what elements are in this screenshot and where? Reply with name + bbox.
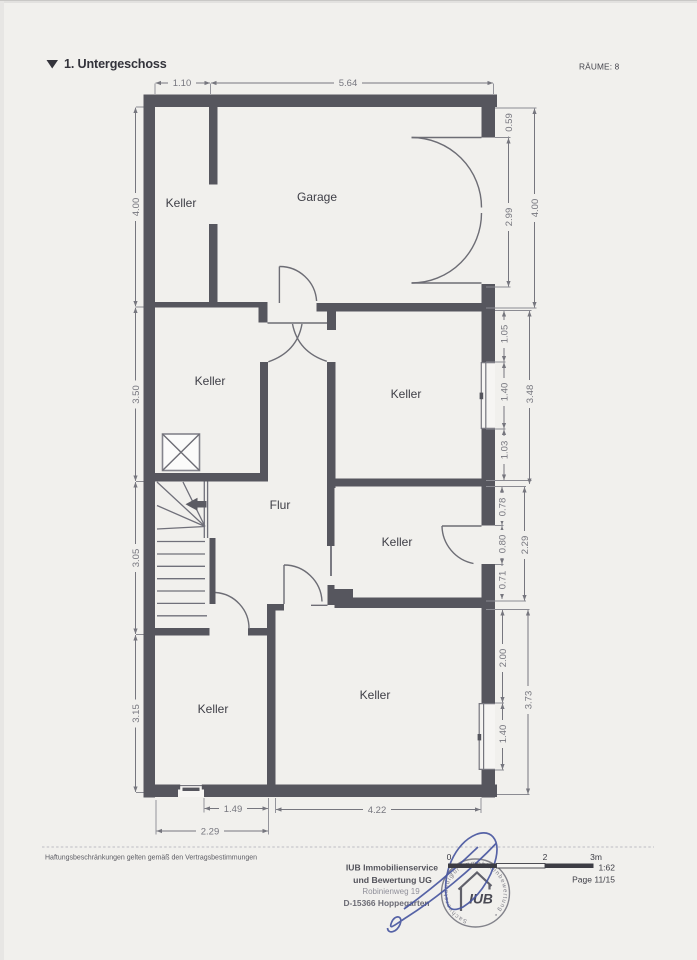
svg-text:0.59: 0.59 (504, 113, 515, 132)
svg-text:1.49: 1.49 (224, 804, 243, 815)
svg-text:4.00: 4.00 (530, 199, 541, 218)
svg-text:1.10: 1.10 (173, 78, 192, 89)
svg-text:Keller: Keller (166, 196, 197, 210)
svg-text:Garage: Garage (297, 190, 337, 204)
svg-text:4.00: 4.00 (131, 198, 142, 217)
svg-text:1.40: 1.40 (499, 383, 510, 402)
svg-text:0.78: 0.78 (497, 498, 508, 517)
svg-text:3.15: 3.15 (131, 704, 142, 723)
svg-text:1.05: 1.05 (499, 325, 510, 344)
svg-text:1. Untergeschoss: 1. Untergeschoss (64, 57, 167, 71)
svg-text:2: 2 (543, 852, 548, 862)
svg-text:Robinienweg 19: Robinienweg 19 (362, 887, 420, 896)
svg-text:4.22: 4.22 (368, 805, 387, 816)
svg-text:0.80: 0.80 (497, 535, 508, 554)
svg-text:1:62: 1:62 (598, 863, 615, 873)
svg-text:IUB Immobilienservice: IUB Immobilienservice (346, 862, 438, 872)
svg-text:1.03: 1.03 (499, 441, 510, 460)
svg-text:2.00: 2.00 (498, 649, 509, 668)
svg-text:0: 0 (447, 852, 452, 862)
svg-text:2.29: 2.29 (201, 826, 220, 837)
svg-text:Keller: Keller (360, 688, 391, 702)
svg-text:RÄUME: 8: RÄUME: 8 (579, 62, 620, 72)
svg-text:Flur: Flur (270, 498, 291, 512)
svg-text:3.48: 3.48 (525, 385, 536, 404)
svg-text:1.40: 1.40 (498, 725, 509, 744)
svg-text:5.64: 5.64 (339, 78, 358, 89)
svg-text:Page 11/15: Page 11/15 (572, 875, 615, 885)
svg-text:Keller: Keller (391, 387, 422, 401)
svg-text:Keller: Keller (382, 535, 413, 549)
svg-text:Keller: Keller (195, 374, 226, 388)
svg-text:Haftungsbeschränkungen gelten: Haftungsbeschränkungen gelten gemäß den … (45, 855, 257, 862)
svg-text:3.73: 3.73 (523, 691, 534, 710)
svg-text:2.29: 2.29 (520, 536, 531, 555)
svg-text:0.71: 0.71 (497, 571, 508, 590)
svg-text:2.99: 2.99 (504, 208, 515, 227)
svg-text:3.50: 3.50 (131, 385, 142, 404)
svg-text:3.05: 3.05 (131, 549, 142, 568)
svg-text:3m: 3m (590, 852, 602, 862)
svg-text:und Bewertung UG: und Bewertung UG (353, 875, 432, 885)
svg-text:Keller: Keller (198, 702, 229, 716)
